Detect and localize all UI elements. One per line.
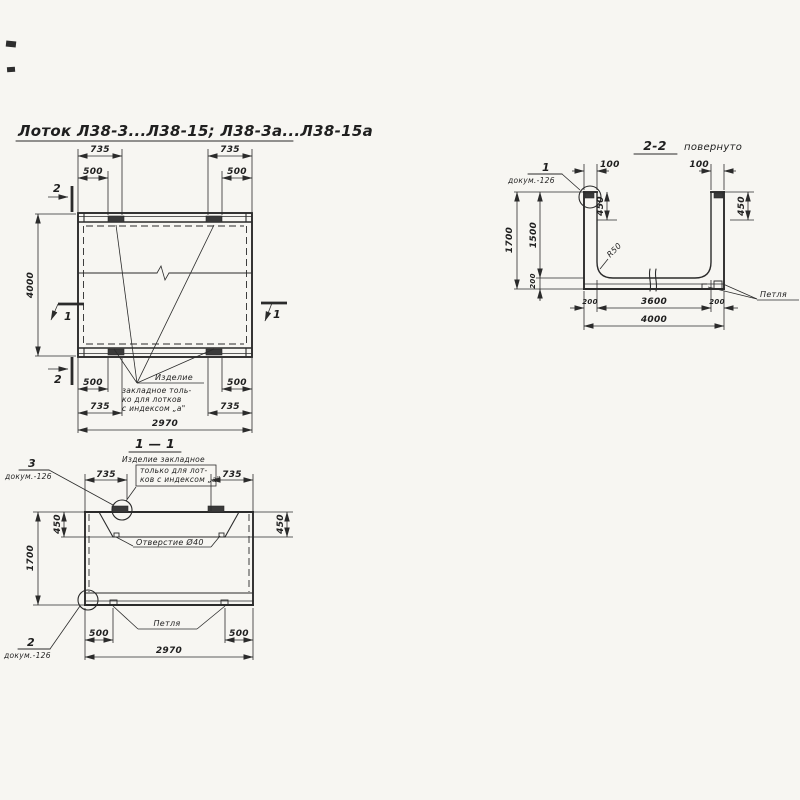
dim-3600-s22: 3600 [641, 297, 667, 307]
callout-1-number: 1 [542, 161, 550, 174]
dim-200-s22-right: 200 [709, 298, 725, 306]
dim-500-top-left: 500 [83, 167, 103, 177]
callout-3-number: 3 [28, 457, 36, 470]
dim-4000-plan: 4000 [26, 272, 36, 299]
dim-200-s22-vert: 200 [529, 273, 537, 289]
loop-label-s22: Петля [760, 290, 787, 299]
section-2-2-callout-1: 1 докум.-126 [507, 161, 580, 190]
lifting-loop [714, 281, 722, 288]
section-1-1-hole-label: Отверстие Ø40 [116, 536, 220, 547]
s11-note-line2: только для лот- [140, 466, 208, 475]
dim-2970-plan: 2970 [152, 419, 178, 429]
s11-note-line3: ков с индексом „а" [140, 475, 221, 484]
dim-735-top-left: 735 [90, 145, 110, 155]
section-1-1-callout-2: 2 докум.-126 [3, 606, 80, 660]
section-1-1-note: Изделие закладное только для лот- ков с … [122, 455, 221, 501]
technical-drawing: Лоток Л38-3...Л38-15; Л38-3а...Л38-15а [0, 0, 800, 800]
embedded-plate [206, 216, 222, 222]
lifting-loop [702, 284, 707, 288]
dim-450-s22-right: 450 [737, 196, 747, 217]
section-mark-2-top: 2 [53, 182, 61, 195]
dim-500-bottom-right: 500 [227, 378, 247, 388]
drawing-title-block: Лоток Л38-3...Л38-15; Л38-3а...Л38-15а [16, 122, 373, 141]
dim-200-s22-left: 200 [582, 298, 598, 306]
hole-40-left [114, 533, 119, 537]
dim-2970-s11: 2970 [156, 646, 182, 656]
dim-735-top-right: 735 [220, 145, 240, 155]
section-1-1-title-text: 1 — 1 [135, 436, 175, 451]
section-1-1-title: 1 — 1 [129, 436, 181, 452]
dim-735-bottom-left: 735 [90, 402, 110, 412]
section-2-2-title-note: повернуто [684, 142, 742, 153]
dim-500-s11-left: 500 [89, 629, 109, 639]
section-1-1-outline [78, 500, 253, 610]
plan-note-line1: Изделие [155, 373, 193, 382]
dim-735-s11-right: 735 [222, 470, 242, 480]
dim-735-s11-left: 735 [96, 470, 116, 480]
dim-500-s11-right: 500 [229, 629, 249, 639]
section-2-2-dimensions: 100 100 450 450 1700 1500 200 [505, 160, 754, 330]
plan-note-line2: закладное толь- [122, 386, 192, 395]
embedded-plate [108, 216, 124, 222]
radius-label: R50 [605, 241, 623, 259]
section-mark-2-bottom: 2 [54, 373, 62, 386]
section-2-2-view: 2-2 повернуто 1 докум.-126 [505, 138, 799, 330]
section-mark-1-left: 1 [64, 310, 72, 323]
hole-label: Отверстие Ø40 [136, 537, 204, 547]
callout-2-doc: докум.-126 [3, 651, 51, 660]
dim-450-s11-right: 450 [276, 514, 286, 535]
dim-100-right: 100 [689, 160, 709, 170]
callout-1-doc: докум.-126 [507, 176, 555, 185]
dim-500-top-right: 500 [227, 167, 247, 177]
section-1-1-view: 1 — 1 Изделие закладное только для лот- … [3, 436, 293, 660]
section-mark-1-right: 1 [273, 308, 281, 321]
section-2-2-radius: R50 [600, 241, 623, 269]
dim-735-bottom-right: 735 [220, 402, 240, 412]
scan-artifacts [6, 40, 17, 72]
loop-label: Петля [153, 619, 180, 628]
dim-500-bottom-left: 500 [83, 378, 103, 388]
dim-1500-s22: 1500 [529, 222, 539, 248]
plan-note-leaders [114, 225, 214, 383]
callout-3-doc: докум.-126 [4, 472, 52, 481]
plan-outline [78, 213, 252, 357]
callout-2-number: 2 [27, 636, 35, 649]
section-2-2-title-text: 2-2 [643, 138, 666, 153]
plan-view: Изделие закладное толь- ко для лотков с … [26, 145, 287, 433]
section-1-1-loop-label: Петля [113, 606, 225, 629]
embedded-plate [206, 349, 222, 355]
embedded-plate [112, 506, 128, 512]
embedded-plate [714, 193, 723, 198]
dim-4000-s22: 4000 [640, 315, 667, 325]
dim-1700-s11: 1700 [26, 545, 36, 571]
dim-450-s11-left: 450 [53, 514, 63, 535]
dim-1700-s22: 1700 [505, 227, 515, 253]
embedded-plate [208, 506, 224, 512]
plan-note: Изделие закладное толь- ко для лотков с … [122, 373, 193, 413]
plan-note-line3: ко для лотков [122, 395, 182, 404]
drawing-title: Лоток Л38-3...Л38-15; Л38-3а...Л38-15а [17, 122, 373, 140]
section-2-2-title: 2-2 повернуто [634, 138, 742, 154]
s11-note-line1: Изделие закладное [122, 455, 205, 464]
section-1-1-callout-3: 3 докум.-126 [4, 457, 113, 505]
scanned-drawing-page: Лоток Л38-3...Л38-15; Л38-3а...Л38-15а [0, 0, 800, 800]
dim-450-s22-left: 450 [596, 196, 606, 217]
dim-100-left: 100 [600, 160, 620, 170]
plan-note-line4: с индексом „а" [122, 404, 186, 413]
embedded-plate [585, 193, 594, 198]
